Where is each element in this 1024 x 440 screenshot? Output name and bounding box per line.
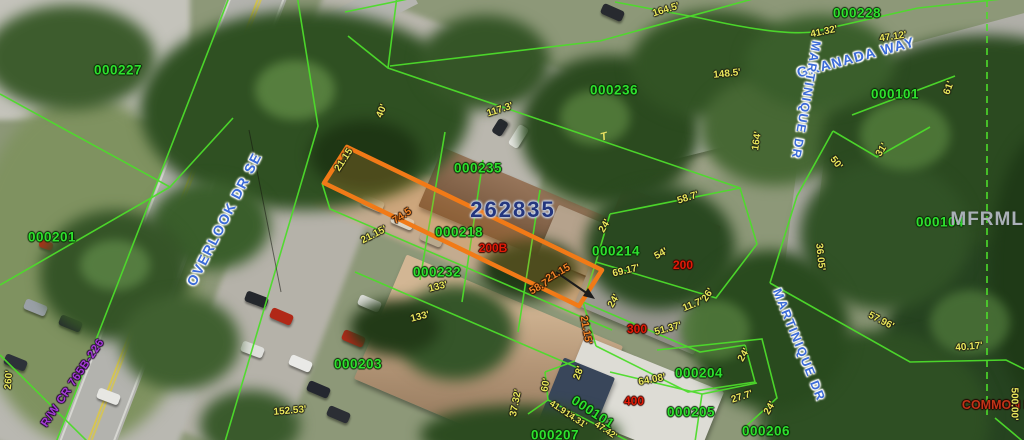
tree-shadow (350, 300, 440, 355)
tree-highlight (860, 100, 950, 170)
tree-highlight (680, 300, 750, 360)
tree-highlight (80, 240, 150, 290)
parcel-map-canvas[interactable]: 000227 000201 000235 000218 000232 00023… (0, 0, 1024, 440)
car (326, 405, 351, 424)
tree-highlight (255, 60, 335, 120)
car (600, 3, 625, 22)
car (306, 380, 331, 399)
tree-highlight (930, 290, 1010, 355)
trees (745, 15, 895, 110)
trees (120, 295, 240, 390)
tree-highlight (560, 90, 630, 145)
tree-shadow (480, 240, 580, 300)
tree-shadow (310, 120, 420, 190)
